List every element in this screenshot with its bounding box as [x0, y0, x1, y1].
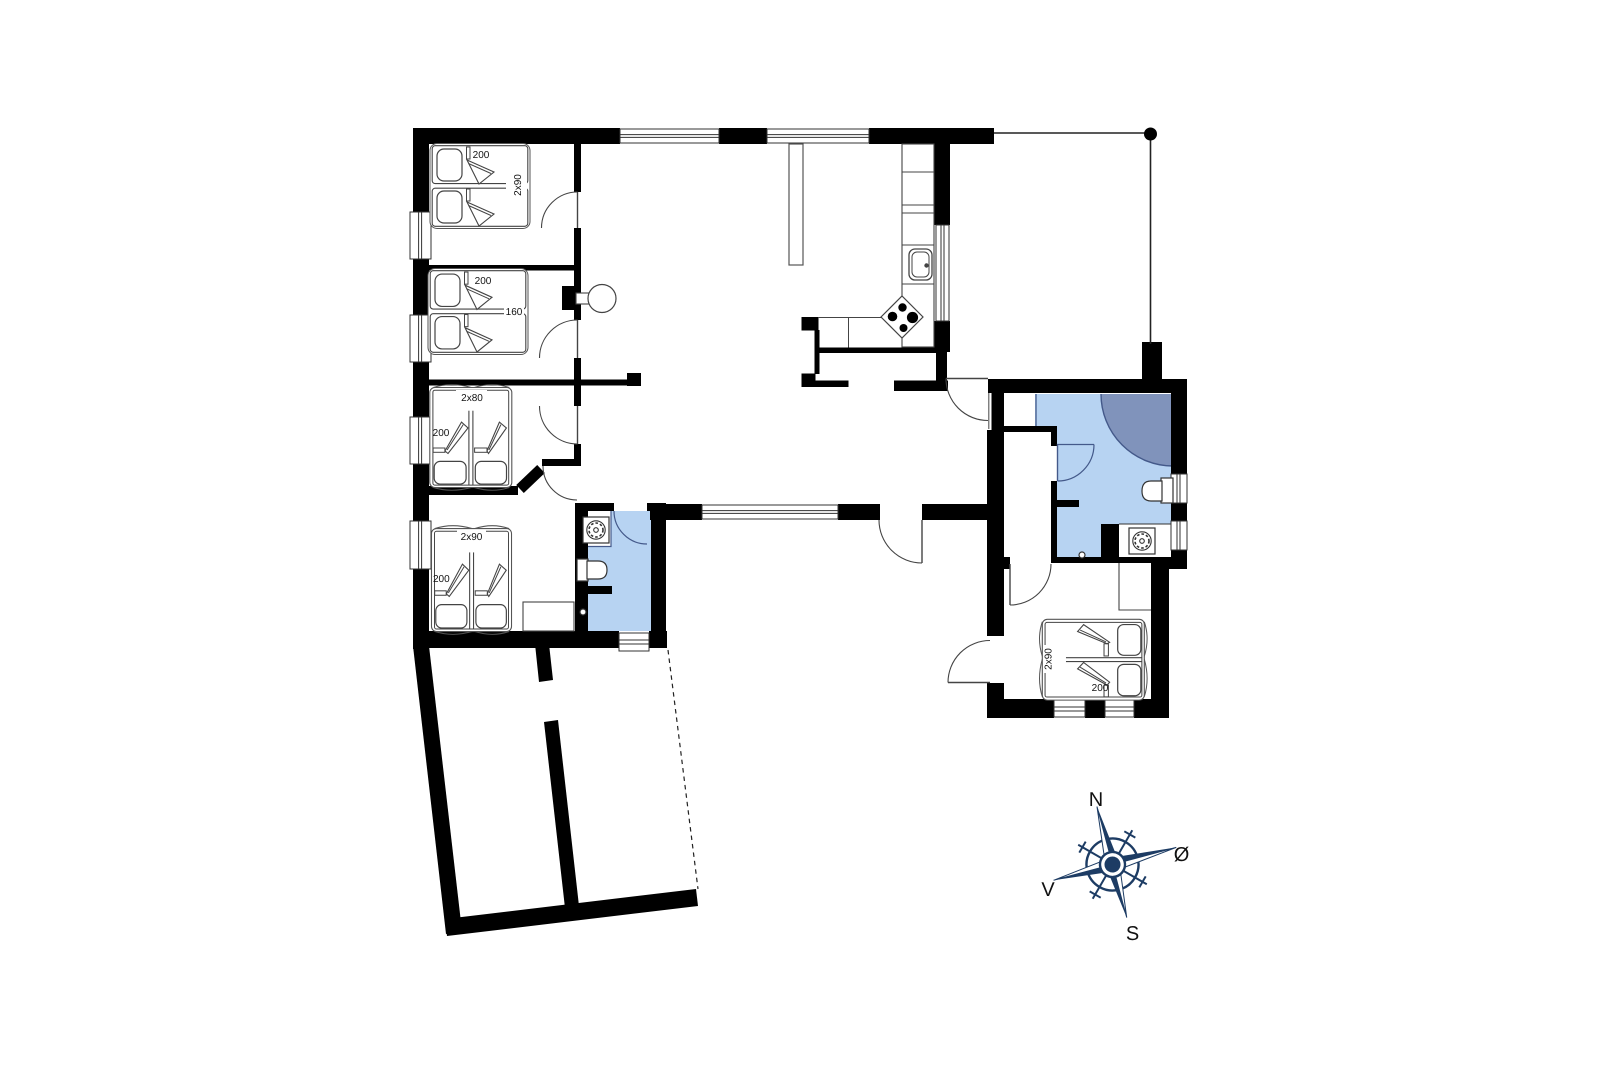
- svg-text:2x80: 2x80: [461, 393, 483, 404]
- svg-text:200: 200: [475, 276, 492, 287]
- svg-text:V: V: [1041, 879, 1055, 901]
- svg-text:2x90: 2x90: [513, 174, 524, 196]
- svg-text:200: 200: [433, 574, 450, 585]
- svg-text:Ø: Ø: [1174, 844, 1190, 866]
- svg-text:160: 160: [506, 307, 523, 318]
- svg-text:2x90: 2x90: [461, 532, 483, 543]
- svg-text:200: 200: [473, 150, 490, 161]
- svg-text:200: 200: [1092, 683, 1109, 694]
- svg-text:N: N: [1089, 789, 1103, 811]
- svg-text:200: 200: [433, 428, 450, 439]
- svg-text:S: S: [1126, 923, 1139, 945]
- svg-text:2x90: 2x90: [1044, 648, 1055, 670]
